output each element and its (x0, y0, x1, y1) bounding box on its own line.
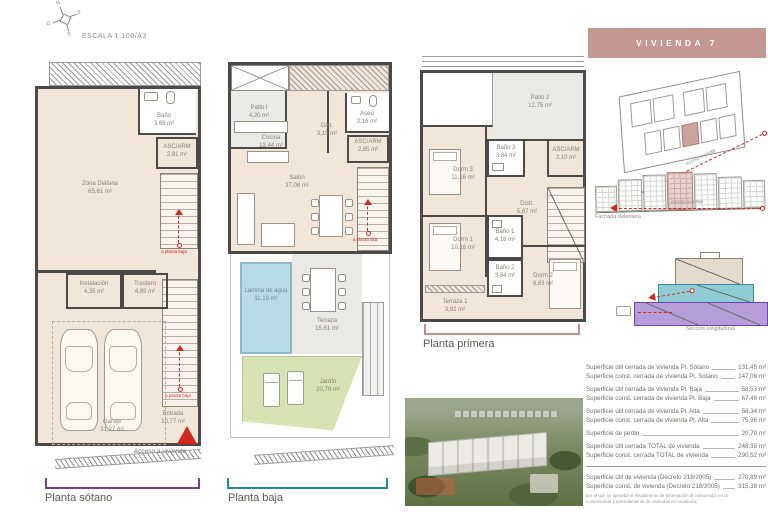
stair-diagonal (548, 188, 584, 262)
kitchen-counter (234, 121, 288, 133)
chair (345, 227, 353, 235)
table-group: Superficie de jardín20,79 m² (586, 430, 766, 437)
site-boundary (619, 71, 746, 173)
facade-house (693, 173, 718, 210)
room-label-lamina: Lámina de agua11,19 m² (241, 288, 291, 304)
table-divider (586, 466, 766, 467)
terrace-hatch (425, 285, 485, 293)
room-label-trastero: Trastero4,89 m² (123, 281, 167, 297)
room-label-jardin: Jardín20,79 m² (305, 379, 351, 395)
leader (705, 391, 739, 392)
leader (711, 457, 735, 458)
terrace-table (310, 268, 336, 312)
section-top-floor (675, 258, 743, 286)
room-label-terraza: Terraza15,61 m² (300, 318, 354, 334)
wall (327, 91, 329, 153)
wall (523, 245, 585, 247)
lounger (287, 371, 304, 405)
facade-access-label: Acceso a garaje (614, 199, 760, 204)
chair (302, 288, 310, 296)
room-label-patio1: Patio I4,20 m² (235, 105, 283, 121)
room-label-dist: Dist.3,15 m² (309, 123, 345, 139)
facade-house-vivienda7 (667, 172, 693, 211)
table-row: Superficie de jardín20,79 m² (586, 430, 766, 437)
facade-house (642, 174, 667, 211)
compass-s: S (67, 31, 72, 38)
leader (714, 479, 735, 480)
bracket-baja (227, 478, 388, 489)
viaduct (455, 411, 558, 417)
wc-fixture (166, 91, 175, 104)
bracket-sotano (45, 478, 200, 489)
car-2 (104, 329, 142, 431)
vivienda-title: VIVIENDA 7 (636, 38, 718, 48)
chair (311, 213, 319, 221)
room-label-zona-diafana: Zona Diáfana65,61 m² (62, 181, 138, 197)
skylight-box (231, 65, 289, 91)
chair (311, 199, 319, 207)
section-car (616, 306, 631, 316)
leader (714, 400, 739, 401)
access-triangle-icon (177, 426, 197, 444)
section-basement (634, 302, 768, 326)
chair (338, 288, 346, 296)
road-hatch (254, 445, 394, 465)
chair (302, 302, 310, 310)
section-caption: Sección longitudinal (686, 326, 735, 332)
compass-rose-icon: N E S O (48, 2, 81, 35)
facade-elevation (594, 164, 765, 213)
leader (703, 448, 736, 449)
room-label-patio2: Patio 212,75 m² (515, 95, 565, 111)
chair (338, 274, 346, 282)
plot (644, 130, 662, 156)
table-row: Superficie const. de vivienda (Decreto 2… (586, 483, 766, 490)
table-group: Superficie útil cerrada de vivienda Pl. … (586, 408, 766, 424)
compass-e: E (77, 9, 82, 16)
plot (718, 114, 736, 140)
leader (712, 369, 735, 370)
wc-fixture (369, 95, 377, 107)
leader (703, 413, 739, 414)
pool (240, 262, 292, 354)
caption-planta-sotano: Planta sótano (45, 492, 112, 504)
photo-buildings (428, 432, 547, 477)
stairs (547, 187, 585, 263)
sink-fixture (492, 163, 504, 171)
room-label-salon: Salón37,08 m² (275, 175, 319, 191)
pergola-lines (422, 56, 584, 70)
stair-direction-arrow (367, 201, 368, 231)
table-row: Superficie const. cerrada TOTAL de vivie… (586, 452, 766, 459)
leader (711, 422, 738, 423)
room-label-garaje: Garaje31,27 m² (84, 419, 140, 435)
neighbour-hatch (289, 65, 389, 91)
plan-primera-body: Patio 212,75 m² Baño 33,84 m² ASC/ARM3,1… (420, 70, 586, 322)
table-group: Superficie útil de vivienda (Decreto 218… (586, 474, 766, 490)
table-group: Superficie útil cerrada de vivienda Pl. … (586, 386, 766, 402)
room-label-bano1: Baño 14,16 m² (488, 229, 522, 245)
table-row: Superficie const. cerrada de vivienda Pl… (586, 395, 766, 402)
facade-access-arrow (614, 208, 760, 209)
plot (663, 126, 681, 152)
room-label-entrada: Entrada10,77 m² (150, 411, 196, 427)
plot (700, 118, 718, 144)
chair (302, 274, 310, 282)
table-row: Superficie útil cerrada TOTAL de viviend… (586, 443, 766, 450)
room-label-bano2: Baño 23,84 m² (488, 265, 522, 281)
plan-primera: Patio 212,75 m² Baño 33,84 m² ASC/ARM3,1… (420, 56, 586, 324)
dining-table (319, 195, 343, 237)
chair (345, 213, 353, 221)
room-label-bano: Baño3,69 m² (142, 113, 186, 129)
bracket-primera (424, 324, 580, 335)
room-label-aseo: Aseo2,16 m² (347, 111, 387, 127)
leader (642, 435, 738, 436)
roof-void (423, 73, 493, 127)
facade-house (718, 176, 743, 209)
stair-direction-arrow (179, 347, 180, 387)
caption-planta-primera: Planta primera (423, 338, 495, 350)
table-group: Superficie útil cerrada TOTAL de viviend… (586, 443, 766, 459)
chair (338, 302, 346, 310)
kitchen-island (247, 151, 289, 163)
room-label-instalacion: Instalación4,35 m² (68, 281, 120, 297)
section-diagonal (697, 285, 753, 303)
room-label-asc: ASC/ARM2,81 m² (157, 144, 197, 160)
stair-note: a planta baja (146, 249, 202, 254)
wall (423, 215, 485, 217)
sink-fixture (492, 285, 502, 293)
neighbour-hatch (49, 62, 201, 86)
outdoor-stairs (362, 302, 384, 396)
photo-roof (416, 478, 455, 495)
sofa (237, 193, 255, 245)
plot-vivienda7 (681, 122, 699, 148)
plot (683, 88, 705, 117)
table-row: Superficie const. cerrada de vivienda Pl… (586, 417, 766, 424)
section-drawing: Sección longitudinal (630, 252, 768, 332)
sink-fixture (351, 96, 361, 104)
plan-baja: Patio I4,20 m² Aseo2,16 m² Dist.3,15 m² … (228, 62, 392, 466)
section-dashed-path (638, 312, 672, 313)
section-diagonal (646, 303, 699, 325)
photo-house (530, 474, 558, 493)
caption-planta-baja: Planta baja (228, 492, 283, 504)
table-row: Superficie útil cerrada de vivienda Pl. … (586, 386, 766, 393)
sofa (261, 223, 295, 247)
room-label-bano3: Baño 33,84 m² (488, 145, 524, 161)
section-diagonal (708, 303, 761, 325)
room-label-terraza1: Terraza 13,92 m² (431, 299, 479, 315)
room-label-dorm2: Dorm 29,83 m² (523, 273, 563, 289)
room-label-dorm1: Dorm 110,16 m² (441, 237, 485, 253)
vivienda-header: VIVIENDA 7 (588, 28, 766, 58)
lounger (263, 373, 280, 407)
facade-house (743, 180, 766, 209)
room-label-dorm3: Dorm 311,16 m² (441, 167, 485, 183)
stair-note: a planta alta (337, 237, 393, 242)
plan-sotano-body: Baño3,69 m² ASC/ARM2,81 m² Zona Diáfana6… (35, 86, 201, 446)
facade-caption: Fachada delantera (595, 214, 641, 220)
compass-o: O (46, 20, 52, 27)
table-row: Superficie const. cerrada de vivienda Pl… (586, 373, 766, 380)
leader (721, 378, 735, 379)
chair (311, 227, 319, 235)
plot (630, 99, 652, 128)
compass-n: N (55, 0, 60, 7)
stair-direction-arrow (178, 211, 179, 243)
plan-sheet: N E S O ESCALA 1:100/A3 Baño3,69 m² ASC/… (0, 0, 768, 512)
section-diagonal (676, 259, 742, 285)
table-row: Superficie útil cerrada de vivienda Pl. … (586, 364, 766, 371)
facade-house (618, 179, 643, 212)
table-group: Superficie útil cerrada de vivienda Pl. … (586, 364, 766, 380)
sink-fixture (492, 220, 502, 228)
aerial-photo (405, 398, 583, 506)
plan-baja-body: Patio I4,20 m² Aseo2,16 m² Dist.3,15 m² … (228, 62, 392, 254)
room-label-asc: ASC/ARM2,85 m² (348, 139, 388, 155)
plot (653, 94, 675, 123)
table-footnote: por el que se aprueba el Reglamento de I… (586, 493, 736, 505)
room-label-cocina: Cocina13,44 m² (249, 135, 293, 151)
car-1 (60, 329, 98, 431)
room-label-asc: ASC/ARM3,10 m² (548, 147, 584, 163)
table-row: Superficie útil cerrada de vivienda Pl. … (586, 408, 766, 415)
chair (345, 199, 353, 207)
sink-fixture (144, 92, 158, 101)
plot (705, 83, 727, 112)
leader (723, 488, 735, 489)
plan-sotano: Baño3,69 m² ASC/ARM2,81 m² Zona Diáfana6… (35, 62, 201, 466)
table-row: Superficie útil de vivienda (Decreto 218… (586, 474, 766, 481)
areas-table: Superficie útil cerrada de vivienda Pl. … (586, 364, 766, 505)
stair-note: a planta baja (150, 393, 206, 398)
scale-label: ESCALA 1:100/A3 (82, 33, 147, 40)
